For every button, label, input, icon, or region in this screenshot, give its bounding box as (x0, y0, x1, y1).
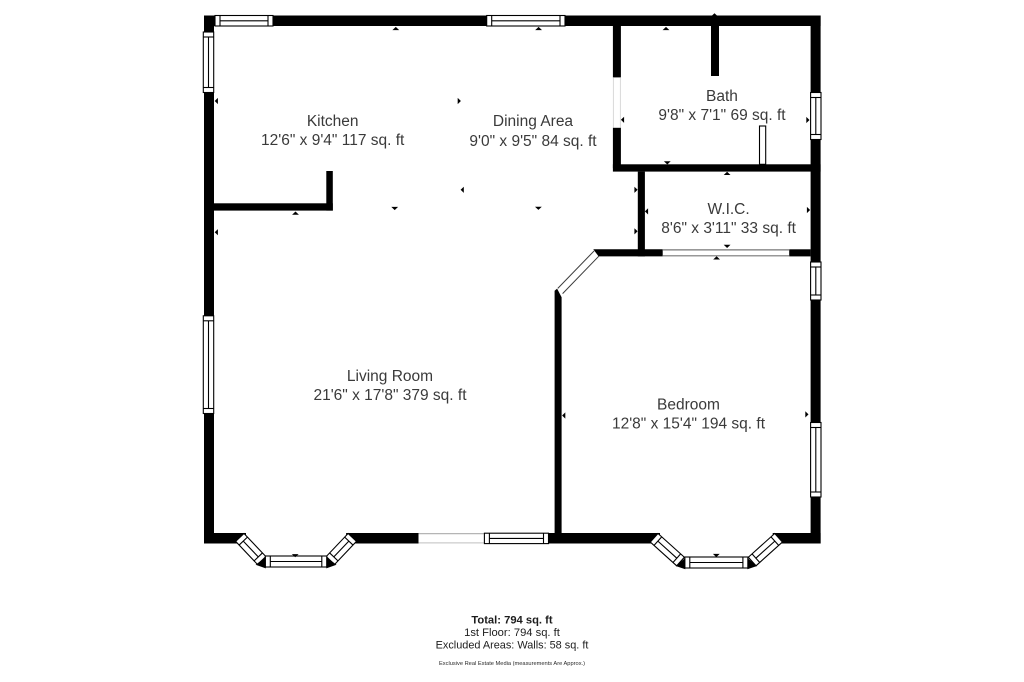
svg-text:Exclusive Real Estate Media (m: Exclusive Real Estate Media (measurement… (439, 661, 585, 667)
svg-text:1st Floor: 794 sq. ft: 1st Floor: 794 sq. ft (464, 627, 561, 639)
svg-text:12'6" x 9'4" 117 sq. ft: 12'6" x 9'4" 117 sq. ft (261, 132, 405, 149)
svg-text:Kitchen: Kitchen (307, 113, 359, 130)
svg-text:21'6" x 17'8" 379 sq. ft: 21'6" x 17'8" 379 sq. ft (313, 387, 467, 404)
svg-text:9'0" x 9'5" 84 sq. ft: 9'0" x 9'5" 84 sq. ft (469, 133, 597, 150)
svg-text:Bath: Bath (706, 88, 738, 105)
svg-text:Bedroom: Bedroom (657, 397, 720, 414)
svg-text:W.I.C.: W.I.C. (707, 201, 749, 218)
svg-text:9'8" x 7'1" 69 sq. ft: 9'8" x 7'1" 69 sq. ft (658, 107, 786, 124)
svg-text:12'8" x 15'4" 194 sq. ft: 12'8" x 15'4" 194 sq. ft (612, 416, 766, 433)
svg-text:Dining Area: Dining Area (493, 113, 574, 130)
svg-text:Total: 794 sq. ft: Total: 794 sq. ft (471, 614, 552, 626)
svg-text:Excluded Areas: Walls: 58 sq.: Excluded Areas: Walls: 58 sq. ft (436, 640, 589, 652)
svg-text:Living Room: Living Room (347, 368, 433, 385)
svg-text:8'6" x 3'11" 33 sq. ft: 8'6" x 3'11" 33 sq. ft (661, 220, 796, 237)
